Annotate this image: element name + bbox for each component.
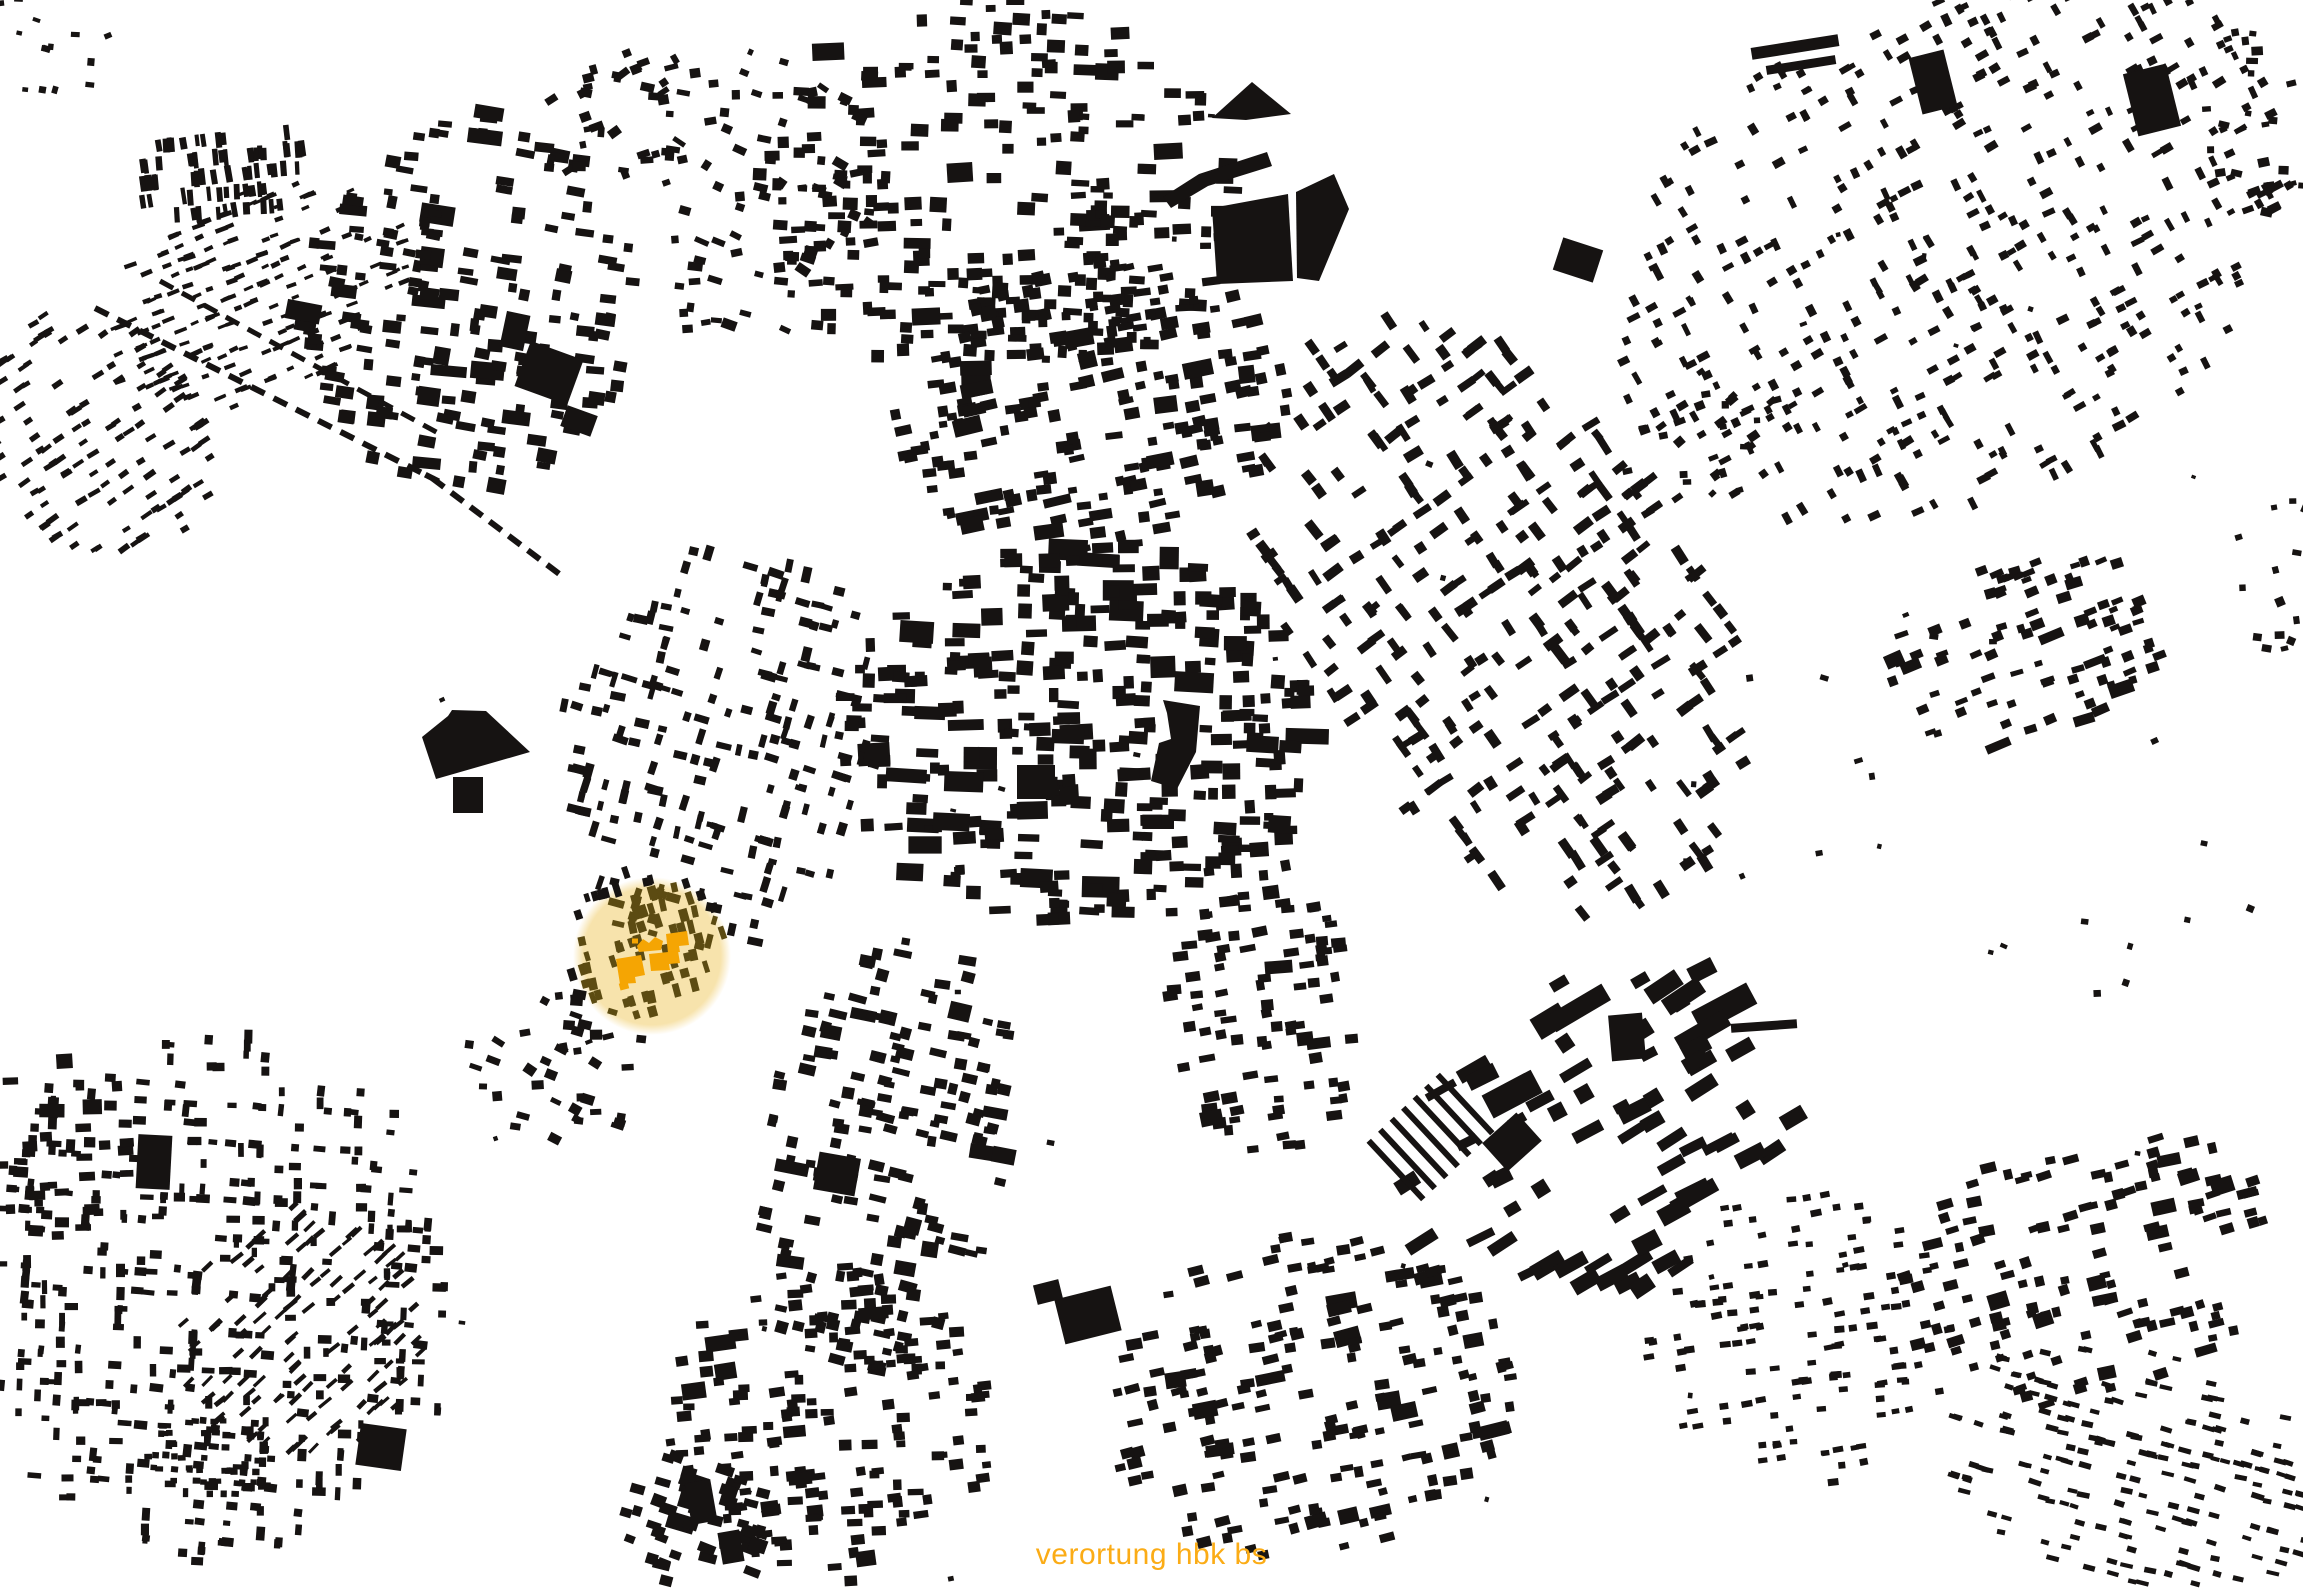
map-caption: verortung hbk bs — [0, 1538, 2303, 1572]
city-map-canvas — [0, 0, 2303, 1594]
schwarzplan-figure-ground-map: verortung hbk bs — [0, 0, 2303, 1594]
buildings-layer — [0, 0, 2303, 1587]
